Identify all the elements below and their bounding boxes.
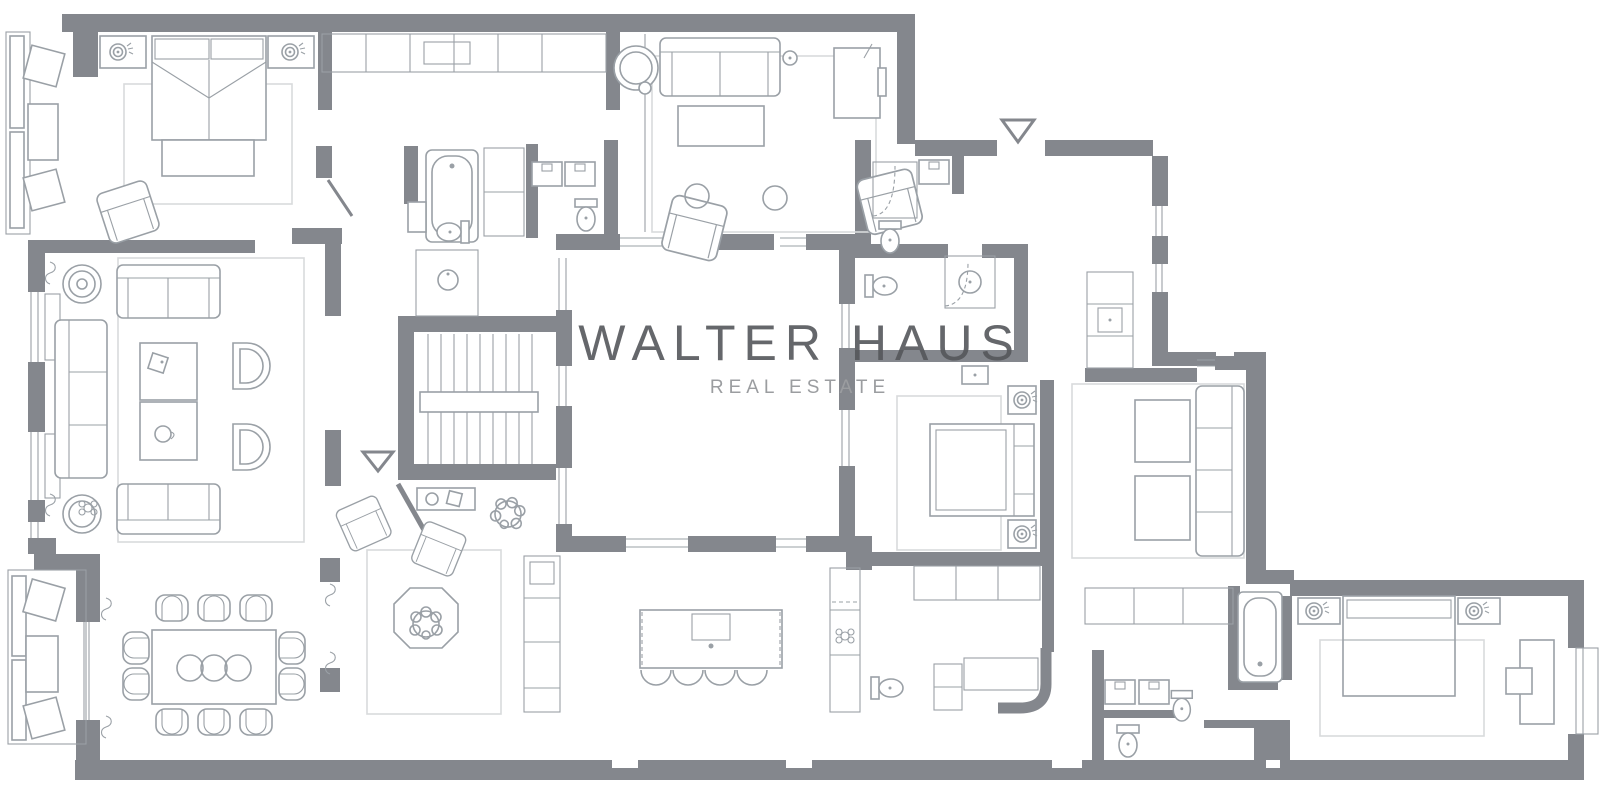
armchair-icon [334, 494, 392, 552]
dining-table-icon [152, 630, 276, 704]
double-bed-icon [1343, 596, 1455, 696]
nightstand-icon [1008, 520, 1037, 548]
nightstand-icon [268, 36, 314, 68]
window-bench-icon [6, 32, 65, 234]
double-bed-icon [930, 424, 1034, 516]
sink-icon [565, 162, 595, 186]
ottoman-icon [1135, 400, 1190, 462]
room-living [46, 258, 305, 542]
sink-icon [919, 160, 949, 184]
side-table-icon [763, 186, 787, 210]
dining-chair-icon [240, 595, 272, 621]
bay-window [1576, 648, 1598, 734]
dining-chair-icon [198, 709, 230, 735]
side-table-icon [63, 495, 101, 533]
entrance-triangle-icon [1002, 120, 1034, 142]
kitchen-island-icon [640, 610, 782, 668]
sofa-icon [55, 320, 107, 478]
room-breakfast-nook [334, 494, 501, 714]
nightstand-icon [1458, 598, 1500, 624]
desk-icon [1506, 640, 1554, 724]
kitchen-counter-icon [524, 556, 560, 712]
stairs-icon [420, 334, 538, 464]
room-bathroom-vanity [484, 148, 597, 236]
room-powder [416, 250, 478, 316]
side-table-icon [63, 265, 101, 303]
wardrobe-icon [322, 34, 606, 72]
watermark: WALTER HAUS REAL ESTATE [578, 315, 1022, 398]
dining-chair-icon [123, 632, 149, 664]
nightstand-icon [1298, 598, 1340, 624]
kitchen-counter-icon [830, 568, 860, 712]
bathtub-icon [1238, 592, 1282, 682]
bar-stool-icon [705, 670, 735, 685]
room-master-bedroom [6, 32, 314, 245]
curtain-mark [46, 494, 56, 516]
watermark-subtitle: REAL ESTATE [710, 377, 890, 398]
sink-icon [1139, 680, 1169, 704]
door-leaf [328, 180, 352, 216]
curtain-mark [326, 584, 336, 606]
sofa-icon [1196, 386, 1244, 556]
counter-icon [914, 566, 1040, 600]
armchair-icon [410, 520, 468, 578]
floor-plan-drawing: WALTER HAUS REAL ESTATE [0, 0, 1600, 798]
dining-chair-icon [240, 709, 272, 735]
wardrobe-row [322, 34, 606, 72]
dining-chair-icon [279, 632, 305, 664]
armchair-icon [233, 343, 270, 389]
sink-icon [1105, 680, 1135, 704]
room-bedroom3 [1298, 596, 1554, 736]
bar-stool-icon [737, 670, 767, 685]
room-bedroom2 [897, 366, 1037, 550]
plant-icon [488, 493, 529, 534]
toilet-icon [437, 221, 469, 243]
counter-icon [964, 658, 1038, 690]
curtain-mark [102, 598, 112, 620]
room-dining [102, 584, 336, 738]
curtain-mark [102, 716, 112, 738]
room-utility [871, 566, 1040, 710]
bed-bench-icon [162, 140, 254, 176]
double-bed-icon [152, 36, 266, 176]
toilet-icon [575, 199, 597, 231]
toilet-icon [871, 677, 903, 699]
toilet-icon [879, 221, 901, 253]
room-bathroom-tub [408, 150, 478, 243]
desk-icon [834, 44, 886, 118]
window-bench-icon [12, 576, 65, 740]
balcony [8, 570, 86, 744]
sink-icon [532, 162, 562, 186]
armchair-icon [95, 179, 161, 245]
toilet-icon [1171, 691, 1192, 721]
floor-plan-page: WALTER HAUS REAL ESTATE [0, 0, 1600, 798]
plant-icon [410, 607, 442, 639]
bar-stool-icon [641, 670, 671, 685]
cabinet-icon [408, 202, 426, 232]
toilet-icon [1117, 725, 1139, 757]
toilet-icon [865, 275, 897, 297]
wing-corridor [1085, 588, 1282, 757]
watermark-title: WALTER HAUS [578, 315, 1022, 371]
inner-entrance-triangle-icon [363, 452, 393, 471]
wardrobe-icon [1085, 588, 1233, 624]
room-ensuite-bath [865, 256, 995, 308]
room-sitting [614, 34, 924, 262]
sofa-icon [117, 484, 220, 534]
room-entry-hall [1087, 272, 1133, 368]
bar-stool-icon [673, 670, 703, 685]
room-kitchen [524, 556, 860, 712]
nightstand-icon [100, 36, 146, 68]
coffee-table-icon [140, 343, 197, 400]
armchair-icon [233, 424, 270, 470]
ottoman-icon [1135, 476, 1190, 540]
sofa-icon [117, 265, 220, 318]
room-family [1072, 384, 1244, 558]
dining-chair-icon [198, 595, 230, 621]
sofa-icon [660, 38, 780, 96]
round-chair-icon [614, 46, 658, 94]
curtain-mark [46, 262, 56, 284]
dining-chair-icon [156, 709, 188, 735]
coffee-table-icon [678, 106, 764, 146]
dining-chair-icon [279, 668, 305, 700]
rug-icon [367, 550, 501, 714]
armchair-icon [660, 194, 728, 262]
nightstand-icon [1008, 386, 1037, 414]
coffee-table-icon [140, 402, 197, 460]
dining-chair-icon [156, 595, 188, 621]
dining-chair-icon [123, 668, 149, 700]
round-table-icon [394, 588, 458, 648]
